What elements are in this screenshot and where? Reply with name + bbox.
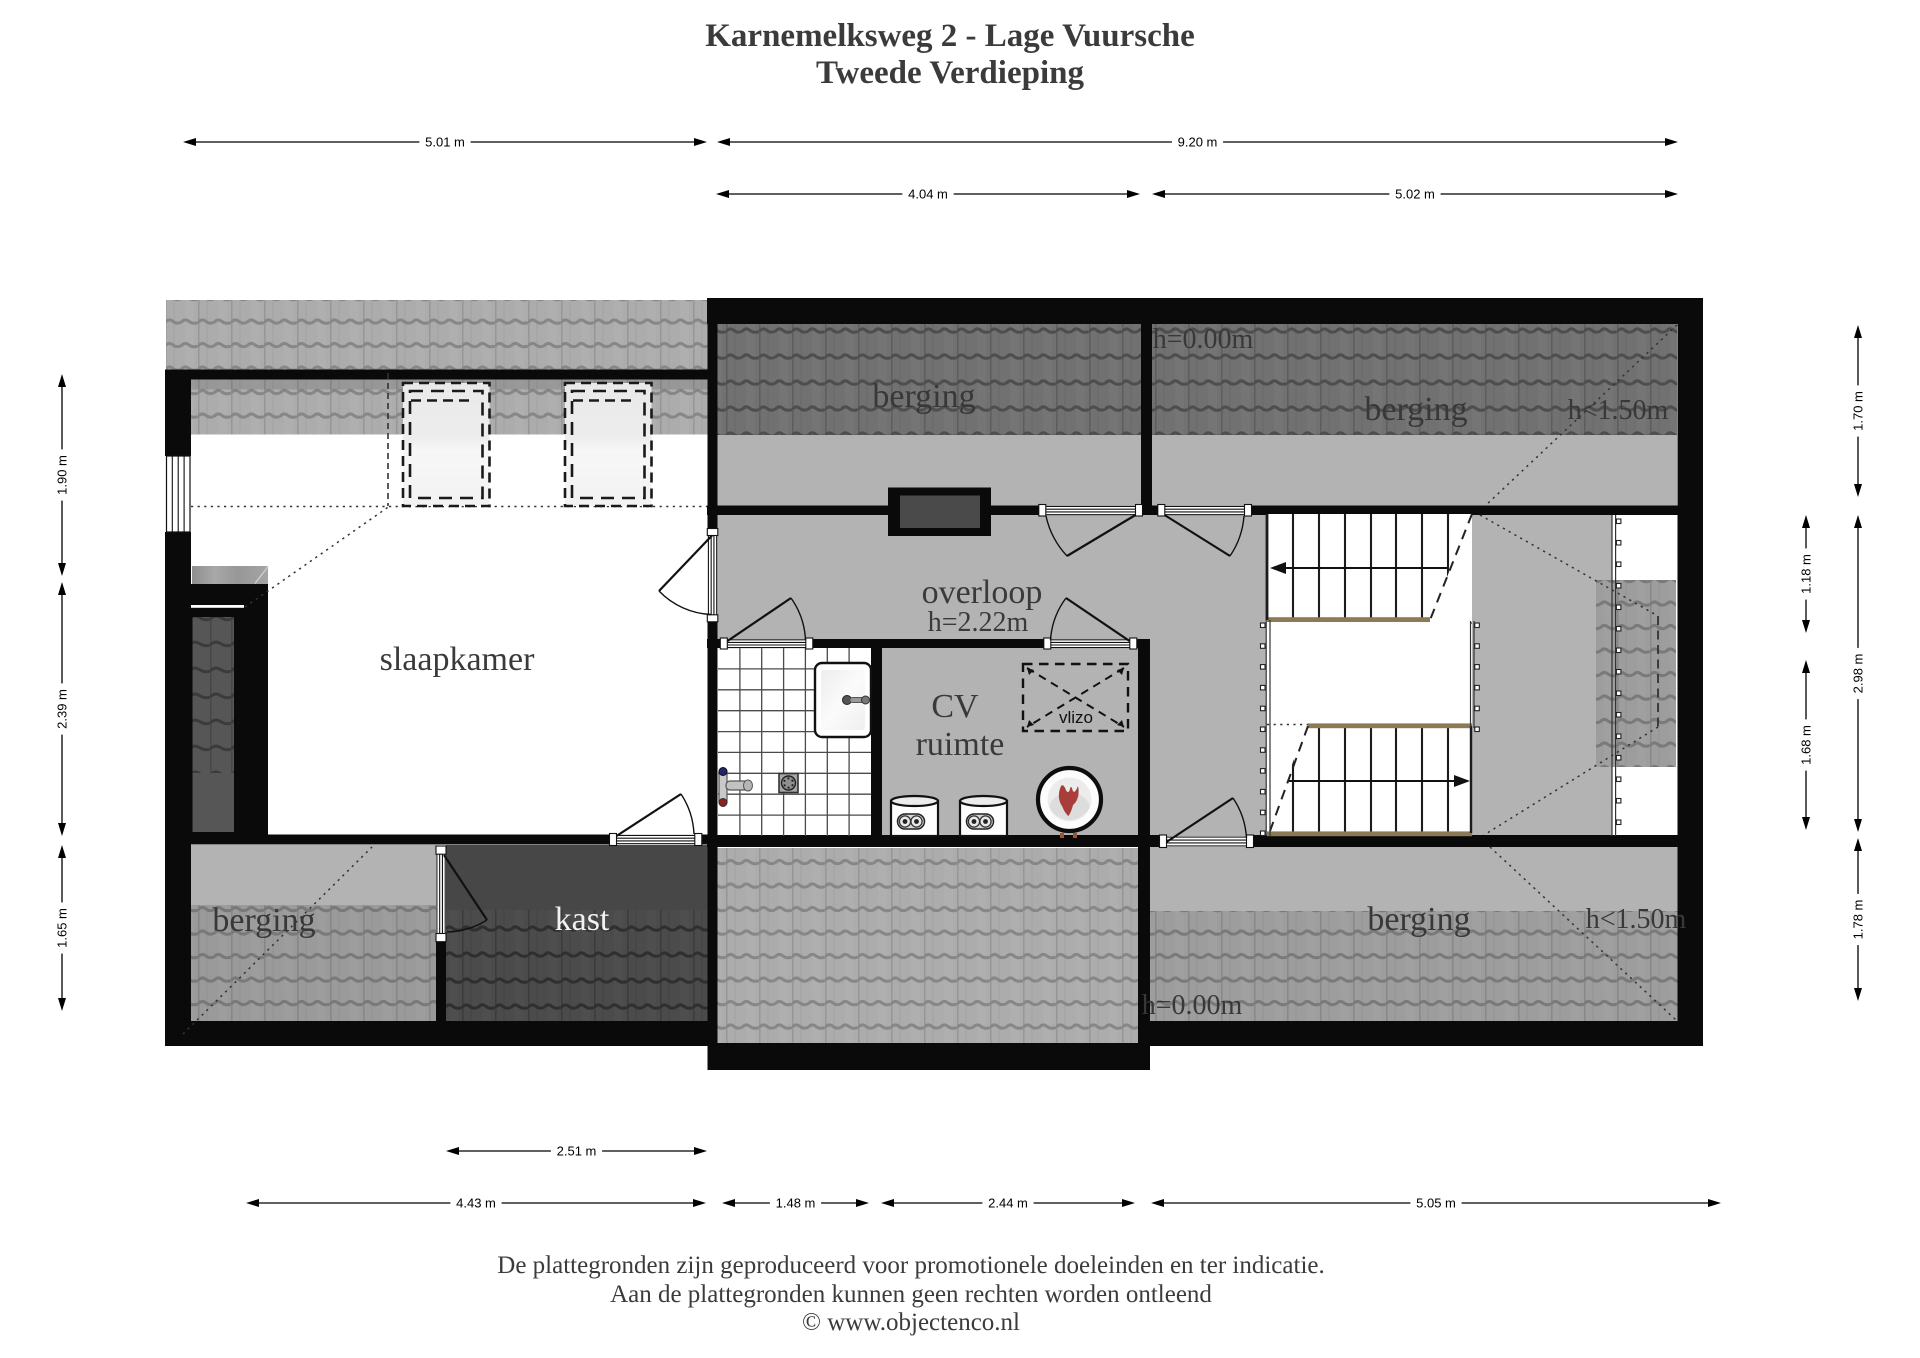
svg-text:4.43 m: 4.43 m: [456, 1196, 496, 1211]
svg-text:overloop: overloop: [922, 574, 1043, 611]
svg-text:h<1.50m: h<1.50m: [1568, 395, 1669, 426]
svg-text:h<1.50m: h<1.50m: [1586, 904, 1687, 935]
svg-text:h=2.22m: h=2.22m: [928, 607, 1029, 638]
svg-text:De plattegronden zijn geproduc: De plattegronden zijn geproduceerd voor …: [497, 1252, 1324, 1279]
svg-text:2.98 m: 2.98 m: [1851, 654, 1866, 694]
svg-text:berging: berging: [212, 902, 315, 939]
svg-text:© www.objectenco.nl: © www.objectenco.nl: [802, 1309, 1020, 1336]
svg-text:berging: berging: [1367, 901, 1470, 938]
svg-text:1.78 m: 1.78 m: [1851, 900, 1866, 940]
svg-text:4.04 m: 4.04 m: [908, 187, 948, 202]
svg-text:5.02 m: 5.02 m: [1395, 187, 1435, 202]
svg-text:h=0.00m: h=0.00m: [1142, 990, 1243, 1021]
svg-text:kast: kast: [555, 901, 610, 938]
svg-text:1.18 m: 1.18 m: [1799, 554, 1814, 594]
svg-text:Tweede Verdieping: Tweede Verdieping: [816, 55, 1084, 91]
svg-text:1.70 m: 1.70 m: [1851, 391, 1866, 431]
svg-text:ruimte: ruimte: [916, 726, 1005, 763]
svg-text:1.48 m: 1.48 m: [776, 1196, 816, 1211]
svg-text:CV: CV: [931, 688, 979, 725]
svg-text:vlizo: vlizo: [1059, 708, 1093, 727]
svg-text:1.90 m: 1.90 m: [55, 455, 70, 495]
svg-text:1.65 m: 1.65 m: [55, 908, 70, 948]
svg-text:2.39 m: 2.39 m: [55, 689, 70, 729]
svg-text:slaapkamer: slaapkamer: [380, 641, 535, 678]
svg-text:berging: berging: [1364, 391, 1467, 428]
svg-text:9.20 m: 9.20 m: [1178, 135, 1218, 150]
svg-text:1.68 m: 1.68 m: [1799, 725, 1814, 765]
svg-text:berging: berging: [872, 378, 975, 415]
svg-text:h=0.00m: h=0.00m: [1153, 324, 1254, 355]
svg-text:5.01 m: 5.01 m: [425, 135, 465, 150]
svg-text:Karnemelksweg 2 - Lage Vuursch: Karnemelksweg 2 - Lage Vuursche: [705, 18, 1195, 54]
svg-text:2.51 m: 2.51 m: [557, 1144, 597, 1159]
svg-text:Aan de plattegronden kunnen ge: Aan de plattegronden kunnen geen rechten…: [610, 1281, 1212, 1308]
svg-text:5.05 m: 5.05 m: [1416, 1196, 1456, 1211]
svg-text:2.44 m: 2.44 m: [988, 1196, 1028, 1211]
